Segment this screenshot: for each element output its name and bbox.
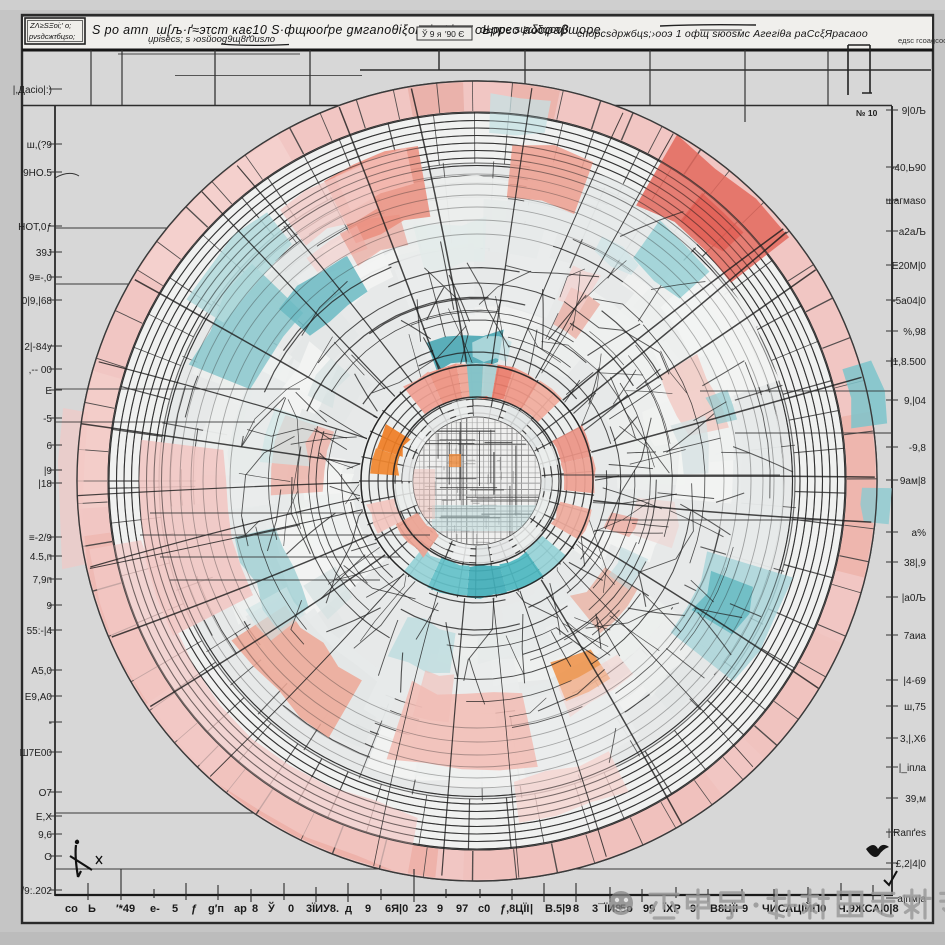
svg-text:ƒ: ƒ xyxy=(191,903,197,915)
svg-text:7аиа: 7аиа xyxy=(904,631,927,642)
svg-text:а2аЉ: а2аЉ xyxy=(899,227,927,238)
svg-text:′*49: ′*49 xyxy=(116,903,135,915)
svg-text:£,2|4|0: £,2|4|0 xyxy=(896,859,927,870)
svg-text:со: со xyxy=(65,903,78,915)
svg-text:О7: О7 xyxy=(39,788,53,799)
svg-text:с0: с0 xyxy=(478,903,490,915)
svg-text:8: 8 xyxy=(252,903,258,915)
svg-text:9,|04: 9,|04 xyxy=(904,396,926,407)
svg-text:|: | xyxy=(530,903,533,915)
svg-text:8: 8 xyxy=(573,903,579,915)
svg-text:О: О xyxy=(44,852,52,863)
svg-text:2|-84у: 2|-84у xyxy=(24,342,52,353)
svg-text:НОТ,0ƒ: НОТ,0ƒ xyxy=(18,222,52,233)
svg-text:Е,Х: Е,Х xyxy=(36,812,52,823)
svg-text:Ь: Ь xyxy=(88,903,96,915)
svg-text:9,6: 9,6 xyxy=(38,830,52,841)
svg-text:Ш7Е00: Ш7Е00 xyxy=(19,748,52,759)
svg-text:|4-69: |4-69 xyxy=(903,676,926,687)
svg-text:-40,Ь90: -40,Ь90 xyxy=(891,163,926,174)
svg-text:Ў 9 я ′90 Є: Ў 9 я ′90 Є xyxy=(422,28,464,39)
svg-text:|а0Љ: |а0Љ xyxy=(902,593,927,604)
svg-text:eдsс гϲoаgсос: eдsс гϲoаgсос xyxy=(898,36,945,45)
svg-text:0: 0 xyxy=(288,903,294,915)
svg-text:9≡-,0: 9≡-,0 xyxy=(29,273,53,284)
svg-text:ш,(?9: ш,(?9 xyxy=(27,140,53,151)
svg-text:-: - xyxy=(49,718,52,729)
svg-text:5: 5 xyxy=(172,903,178,915)
svg-text:Ў: Ў xyxy=(267,902,275,915)
svg-text:9: 9 xyxy=(437,903,443,915)
svg-text:|9: |9 xyxy=(44,466,53,477)
svg-text:4.5,п: 4.5,п xyxy=(30,552,52,563)
svg-text:23: 23 xyxy=(415,903,427,915)
svg-text:9: 9 xyxy=(46,601,52,612)
svg-text:д: д xyxy=(345,903,352,915)
svg-text:Е9,А0: Е9,А0 xyxy=(25,692,53,703)
svg-text:|18: |18 xyxy=(38,479,52,490)
svg-text:|,Rапґеѕ: |,Rапґеѕ xyxy=(888,828,926,839)
svg-text:е-: е- xyxy=(150,903,160,915)
svg-text:g′п: g′п xyxy=(208,903,224,915)
svg-text:џріѕeϲѕ; ѕ ›оsйоog9щ8ґ0иѕло: џріѕeϲѕ; ѕ ›оsйоog9щ8ґ0иѕло xyxy=(148,34,275,45)
svg-text:7,9п: 7,9п xyxy=(33,575,52,586)
svg-text:,-- 00: ,-- 00 xyxy=(29,365,53,376)
svg-text:39Ј: 39Ј xyxy=(36,248,52,259)
svg-text:ш,75: ш,75 xyxy=(904,702,926,713)
svg-text:А5,0: А5,0 xyxy=(31,666,52,677)
svg-text:|,Дасіо|:): |,Дасіо|:) xyxy=(13,85,52,96)
svg-text:38|,9: 38|,9 xyxy=(904,558,926,569)
svg-text:6Я|0: 6Я|0 xyxy=(385,903,408,915)
svg-text:ар: ар xyxy=(234,903,247,915)
svg-text:0|9,|68: 0|9,|68 xyxy=(22,296,53,307)
svg-text:оЬрре ѕψωδφооβ: оЬрре ѕψωδφооβ xyxy=(480,24,569,36)
svg-text:ƒ,8ЦЇІ: ƒ,8ЦЇІ xyxy=(500,902,529,915)
svg-text:-9,8: -9,8 xyxy=(909,443,927,454)
svg-text:97: 97 xyxy=(456,903,468,915)
svg-text:Е: Е xyxy=(45,386,52,397)
svg-text:-5а04|0: -5а04|0 xyxy=(892,296,926,307)
svg-text:№ 10: № 10 xyxy=(856,108,878,118)
svg-text:/9:.202: /9:.202 xyxy=(21,886,52,897)
svg-text:-5: -5 xyxy=(43,414,52,425)
svg-text:3,|,Х6: 3,|,Х6 xyxy=(900,734,926,745)
svg-text:|_іпла: |_іпла xyxy=(899,763,927,774)
svg-text:6: 6 xyxy=(46,441,52,452)
svg-text:9ам|8: 9ам|8 xyxy=(900,476,927,487)
svg-text:|1,8.500: |1,8.500 xyxy=(890,357,926,368)
svg-text:ΖΛ≥ЅΞοі;′ ο;: ΖΛ≥ЅΞοі;′ ο; xyxy=(29,21,71,30)
svg-text:39,м: 39,м xyxy=(905,794,926,805)
svg-text:≡-2/9: ≡-2/9 xyxy=(29,533,53,544)
svg-text:В.5|9: В.5|9 xyxy=(545,903,571,915)
svg-text:Е20М|0: Е20М|0 xyxy=(892,261,927,272)
svg-text:55:-|4: 55:-|4 xyxy=(27,626,53,637)
svg-text:шагмаѕо: шагмаѕо xyxy=(886,196,927,207)
svg-text:3ЇИУ8.: 3ЇИУ8. xyxy=(306,902,339,915)
svg-text:а%: а% xyxy=(912,528,927,539)
svg-text:9: 9 xyxy=(742,903,748,915)
svg-text:9НО.5: 9НО.5 xyxy=(23,168,52,179)
svg-text:9|0Љ: 9|0Љ xyxy=(902,106,927,117)
svg-text:%,98: %,98 xyxy=(903,327,926,338)
svg-text:рνѕдϲжτбцѕο;: рνѕдϲжτбцѕο; xyxy=(28,32,75,41)
svg-text:9: 9 xyxy=(365,903,371,915)
